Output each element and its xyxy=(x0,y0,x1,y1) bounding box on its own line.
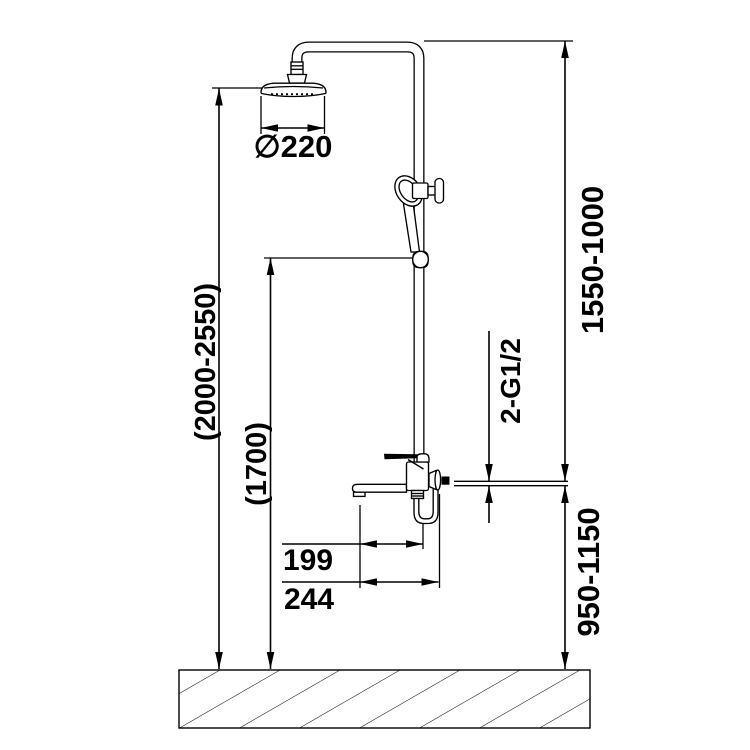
mixer-unit xyxy=(353,454,450,524)
dim-label-overall-height: (2000-2550) xyxy=(190,283,222,441)
shower-riser-pipe xyxy=(297,47,419,462)
dim-thread-connection: 2-G1/2 xyxy=(485,331,526,523)
rain-shower-head xyxy=(261,62,326,97)
technical-drawing-shower-system: (2000-2550) (1700) 1550-1000 950-1150 2-… xyxy=(0,0,750,750)
slider-holder xyxy=(413,251,429,267)
dim-label-spout-reach: 199 xyxy=(283,544,333,577)
dim-label-upper-riser: 1550-1000 xyxy=(575,186,610,334)
dim-label-head-diameter: ∅220 xyxy=(254,129,333,164)
dim-spout-reach: 199 xyxy=(282,540,423,577)
dim-handshower-height: (1700) xyxy=(241,258,274,669)
mixer-nut xyxy=(412,491,424,499)
mixer-lever xyxy=(384,454,418,460)
dim-label-thread-connection: 2-G1/2 xyxy=(495,338,526,424)
drawing-canvas: (2000-2550) (1700) 1550-1000 950-1150 2-… xyxy=(0,0,750,750)
spout-aerator xyxy=(354,492,366,496)
dim-label-lower-mixer: 950-1150 xyxy=(571,507,606,636)
dim-lower-mixer: 950-1150 xyxy=(561,486,606,669)
side-handle-disc xyxy=(435,470,441,490)
side-handle-stub xyxy=(442,477,450,485)
lever-pivot xyxy=(417,454,429,462)
dim-label-handshower-height: (1700) xyxy=(241,422,273,506)
dim-upper-riser: 1550-1000 xyxy=(561,41,610,481)
dim-overall-height: (2000-2550) xyxy=(190,89,223,670)
tub-spout xyxy=(353,484,407,492)
dim-head-diameter: ∅220 xyxy=(254,124,333,164)
mixer-body xyxy=(407,462,429,491)
dim-label-overall-depth: 244 xyxy=(284,583,334,616)
wall-connection-line xyxy=(454,481,568,485)
floor-hatch xyxy=(179,670,590,728)
